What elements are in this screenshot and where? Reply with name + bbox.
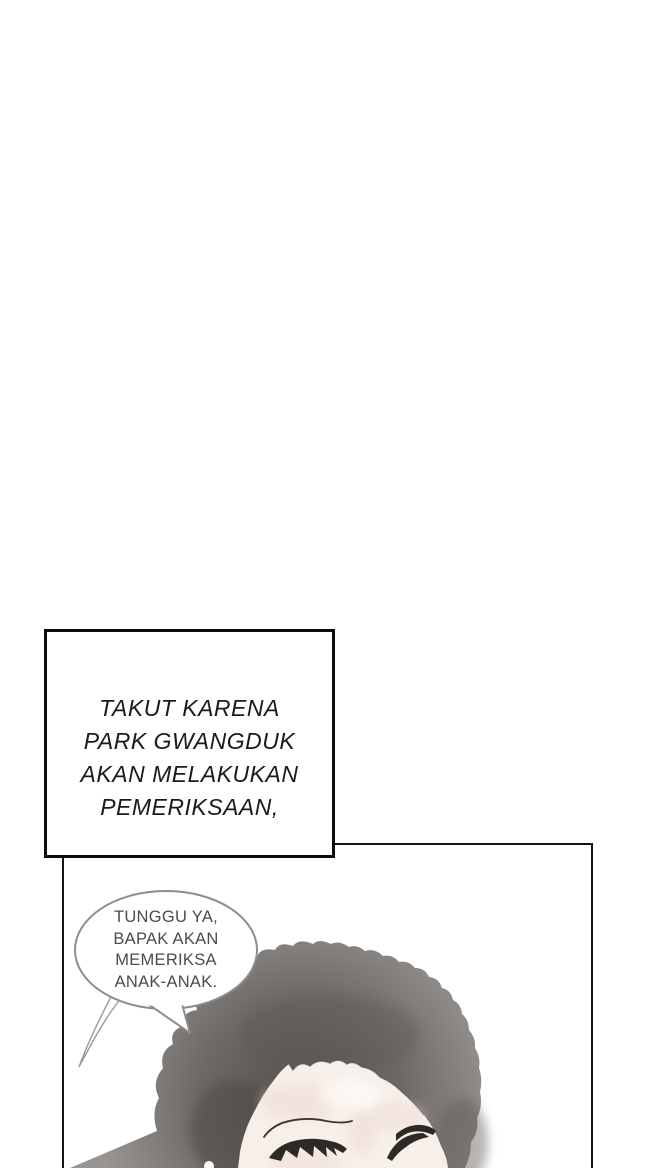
bubble-line: MEMERIKSA (81, 949, 252, 971)
narration-line: PEMERIKSAAN, (100, 791, 279, 824)
bubble-line: ANAK-ANAK. (81, 971, 252, 993)
speech-bubble-tail (148, 1004, 190, 1033)
bubble-line: TUNGGU YA, (81, 906, 252, 928)
bubble-line: BAPAK AKAN (81, 928, 252, 950)
narration-line: PARK GWANGDUK (84, 725, 295, 758)
speech-bubble-text: TUNGGU YA, BAPAK AKAN MEMERIKSA ANAK-ANA… (81, 906, 252, 992)
comic-page: TUNGGU YA, BAPAK AKAN MEMERIKSA ANAK-ANA… (0, 0, 650, 1168)
panel-artwork (0, 0, 650, 1168)
bubble-curl-line (79, 993, 121, 1067)
narration-box: TAKUT KARENA PARK GWANGDUK AKAN MELAKUKA… (44, 629, 335, 858)
narration-line: TAKUT KARENA (99, 692, 280, 725)
narration-line: AKAN MELAKUKAN (81, 758, 299, 791)
